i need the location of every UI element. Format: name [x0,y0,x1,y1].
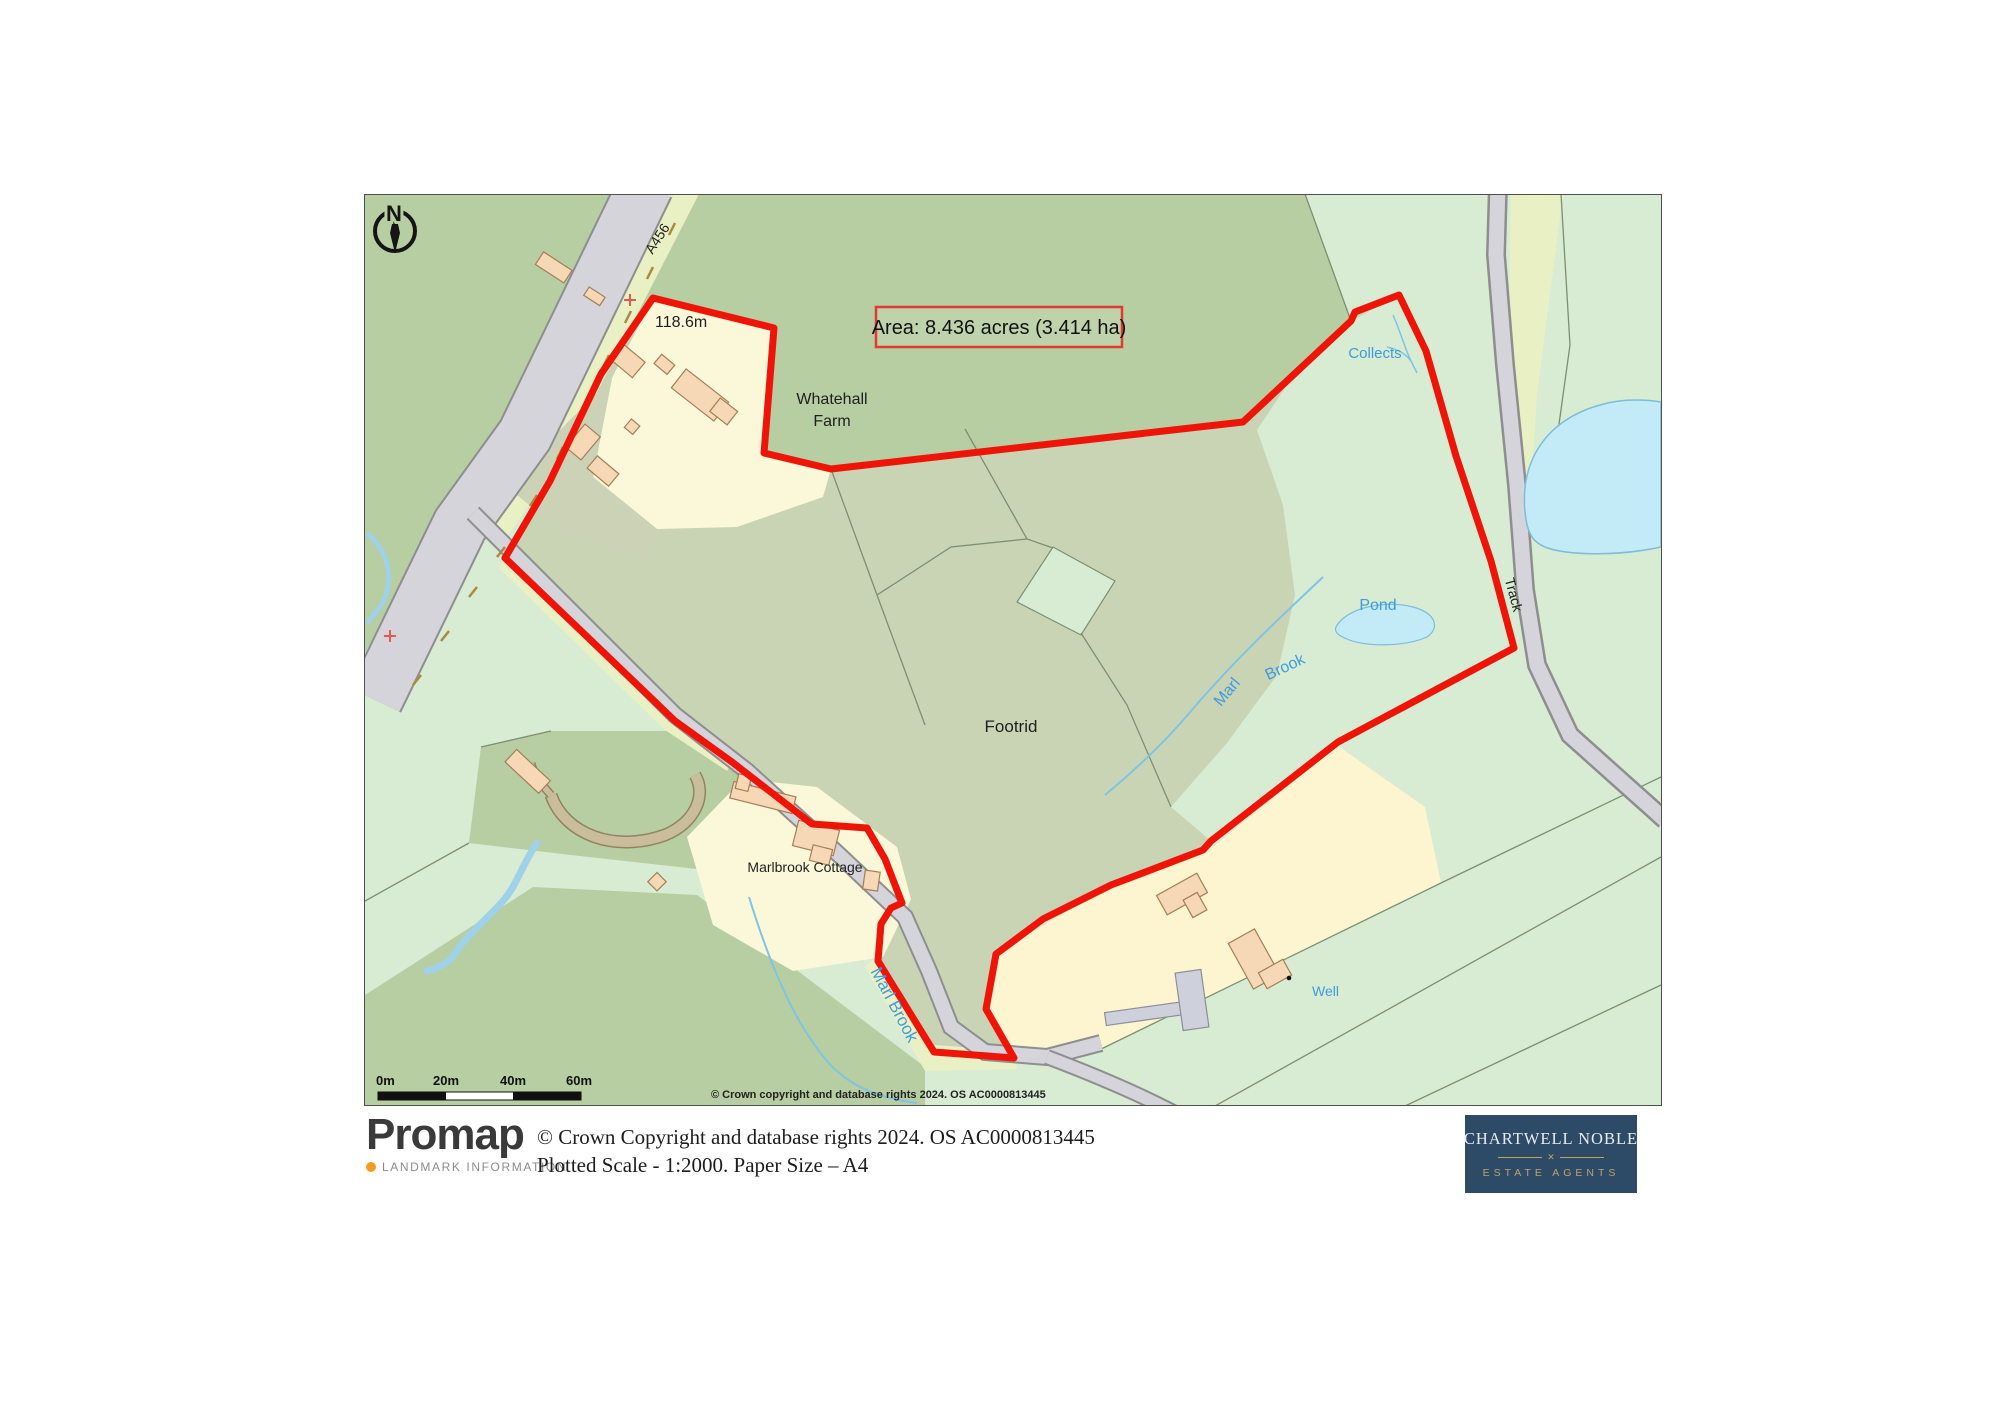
landmark-dot-icon [366,1162,376,1172]
footer-copyright: © Crown Copyright and database rights 20… [537,1123,1095,1179]
label-well: Well [1312,983,1339,999]
well-dot [1287,976,1292,981]
scale-tick-3: 60m [566,1073,592,1088]
label-footrid: Footrid [985,717,1038,736]
label-whatehall-farm-2: Farm [813,413,850,430]
label-pond: Pond [1359,597,1396,614]
scale-tick-1: 20m [433,1073,459,1088]
area-label: Area: 8.436 acres (3.414 ha) [872,317,1127,339]
agent-name: CHARTWELL NOBLE [1464,1129,1638,1149]
promap-wordmark: Promap [366,1112,536,1158]
label-collects: Collects [1348,345,1401,362]
agent-subtitle: ESTATE AGENTS [1483,1167,1620,1179]
area-box: Area: 8.436 acres (3.414 ha) [872,307,1127,347]
north-letter: N [386,201,402,226]
map-canvas: Area: 8.436 acres (3.414 ha) 118.6m What… [365,195,1661,1105]
scale-tick-0: 0m [376,1073,395,1088]
footer-copyright-line2: Plotted Scale - 1:2000. Paper Size – A4 [537,1151,1095,1179]
agent-ornament: ✕ [1498,1153,1604,1162]
map-copyright: © Crown copyright and database rights 20… [711,1089,1046,1101]
map-container: Area: 8.436 acres (3.414 ha) 118.6m What… [364,194,1662,1106]
promap-logo: Promap LANDMARK INFORMATION [366,1112,536,1174]
ornament-bar-right [1560,1157,1604,1158]
promap-tagline-row: LANDMARK INFORMATION [366,1160,536,1174]
ornament-bar-left [1498,1157,1542,1158]
chartwell-noble-logo: CHARTWELL NOBLE ✕ ESTATE AGENTS [1465,1115,1637,1193]
label-height: 118.6m [655,314,707,331]
ornament-x-icon: ✕ [1547,1153,1555,1162]
label-whatehall-farm-1: Whatehall [796,391,867,408]
label-marlbrook-cottage: Marlbrook Cottage [747,859,862,875]
scale-tick-2: 40m [500,1073,526,1088]
page: Area: 8.436 acres (3.414 ha) 118.6m What… [0,0,2000,1414]
footer-copyright-line1: © Crown Copyright and database rights 20… [537,1123,1095,1151]
